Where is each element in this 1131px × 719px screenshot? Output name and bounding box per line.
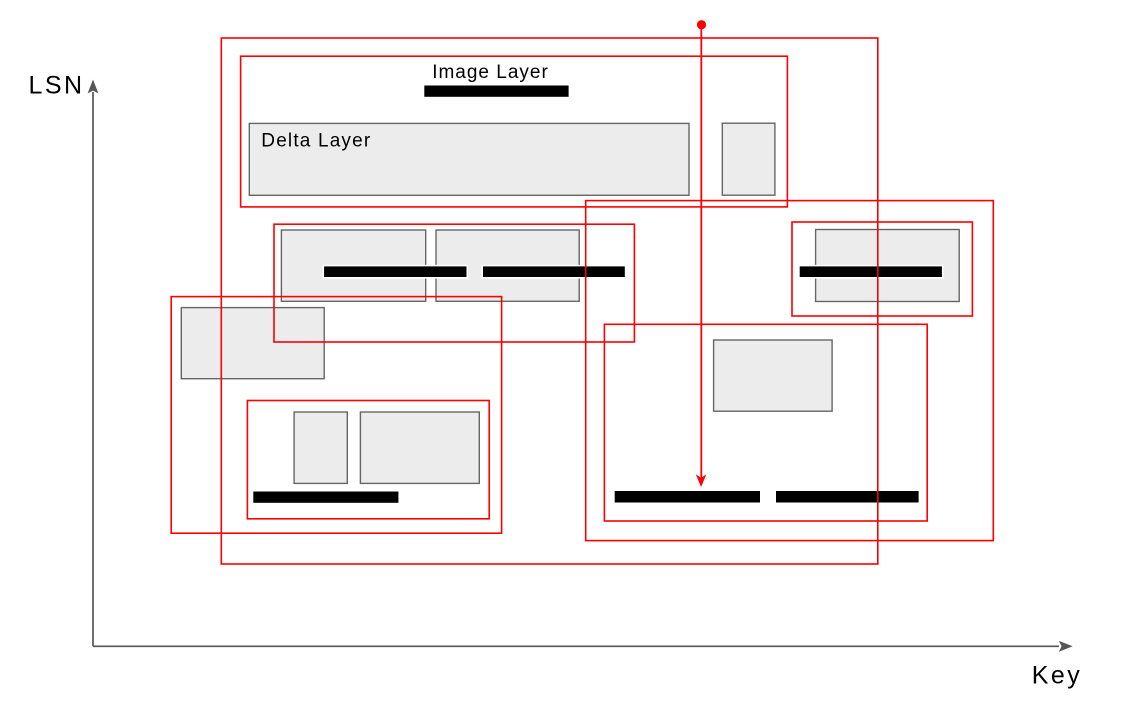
svg-text:Delta Layer: Delta Layer (261, 131, 371, 152)
svg-text:Key: Key (1032, 661, 1083, 689)
svg-text:Image Layer: Image Layer (432, 62, 549, 83)
svg-text:LSN: LSN (29, 72, 85, 100)
